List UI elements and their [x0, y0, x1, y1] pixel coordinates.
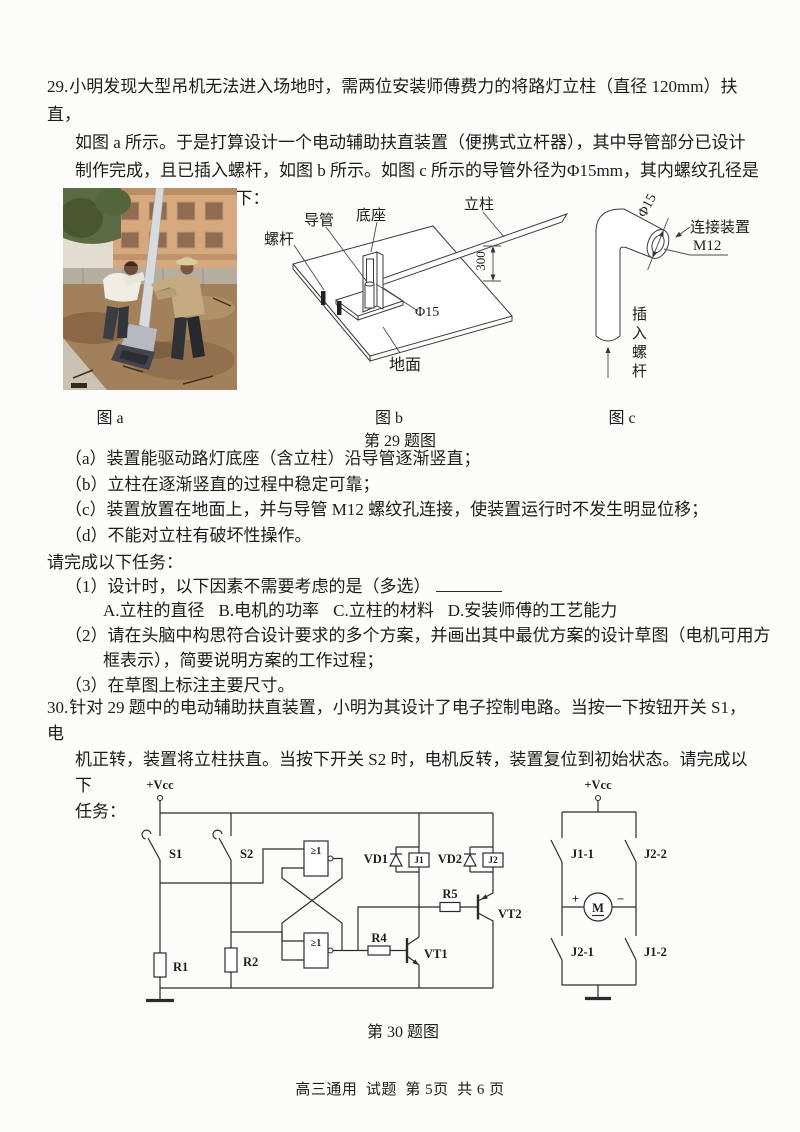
vd1-label: VD1 — [364, 852, 388, 866]
r5-label: R5 — [442, 887, 457, 901]
figure-b-drawing: 螺杆 导管 底座 立柱 Φ15 地面 300 — [250, 188, 570, 400]
resistor-r2: R2 — [225, 948, 258, 972]
contact-j2-1: J2-1 — [551, 938, 594, 960]
q30-text: 针对 29 题中的电动辅助扶直装置，小明为其设计了电子控制电路。当按一下按钮开关… — [47, 698, 746, 743]
s2-label: S2 — [240, 847, 253, 861]
contact-j2-2: J2-2 — [625, 840, 667, 862]
j1-2-label: J1-2 — [644, 945, 667, 959]
nor-gate-1: ≥1 — [304, 841, 333, 876]
resistor-r4: R4 — [368, 931, 390, 955]
page-footer: 高三通用 试题 第 5页 共 6 页 — [0, 1078, 800, 1099]
requirement-b: （b）立柱在逐渐竖直的过程中稳定可靠； — [65, 472, 708, 498]
circuit-diagram: +Vcc S1 R1 S2 — [85, 778, 745, 1018]
task-3: （3）在草图上标注主要尺寸。 — [65, 671, 295, 696]
r2-label: R2 — [243, 955, 258, 969]
resistor-r1: R1 — [154, 953, 188, 977]
r4-label: R4 — [371, 931, 387, 945]
vcc-label: +Vcc — [584, 778, 612, 792]
q29-line: 29.小明发现大型吊机无法进入场地时，需两位安装师傅费力的将路灯立柱（直径 12… — [47, 73, 762, 129]
s1-label: S1 — [169, 847, 182, 861]
requirement-a: （a）装置能驱动路灯底座（含立柱）沿导管逐渐竖直； — [65, 446, 708, 472]
contact-j1-2: J1-2 — [625, 938, 667, 960]
photo-illustration — [63, 188, 237, 390]
requirement-c: （c）装置放置在地面上，并与导管 M12 螺纹孔连接，使装置运行时不发生明显位移… — [65, 497, 708, 523]
nor-gate-2: ≥1 — [304, 933, 333, 968]
caption-question-30-figure: 第 30 题图 — [333, 1018, 473, 1042]
vcc-label: +Vcc — [146, 778, 174, 792]
task-2-line-2: 框表示），简要说明方案的工作过程； — [103, 646, 384, 671]
resistor-r5: R5 — [440, 887, 460, 912]
task-1: （1）设计时，以下因素不需要考虑的是（多选） — [65, 572, 502, 597]
label-dimension-300: 300 — [473, 251, 489, 271]
pushbutton-s2: S2 — [213, 830, 253, 861]
motor-plus: + — [572, 892, 579, 906]
label-pole: 立柱 — [464, 193, 494, 214]
option-d: D.安装师傅的工艺能力 — [448, 596, 618, 621]
figure-30-circuit: +Vcc S1 R1 S2 — [85, 778, 745, 1018]
motor-minus: − — [617, 892, 624, 906]
label-insert-screw: 插入螺杆 — [628, 306, 649, 382]
control-circuit: +Vcc S1 R1 S2 — [142, 778, 522, 1001]
vcc-terminal — [158, 796, 163, 801]
task-1-options: A.立柱的直径 B.电机的功率 C.立柱的材料 D.安装师傅的工艺能力 — [103, 596, 617, 621]
q29-text: 小明发现大型吊机无法进入场地时，需两位安装师傅费力的将路灯立柱（直径 120mm… — [47, 77, 737, 124]
task-2-line-1: （2）请在头脑中构思符合设计要求的多个方案，并画出其中最优方案的设计草图（电机可… — [65, 621, 771, 646]
vcc-terminal — [596, 796, 601, 801]
q30-line: 30.针对 29 题中的电动辅助扶直装置，小明为其设计了电子控制电路。当按一下按… — [47, 695, 762, 747]
label-ground: 地面 — [389, 351, 421, 375]
q29-number: 29. — [47, 77, 68, 96]
q29-line: 如图 a 所示。于是打算设计一个电动辅助扶直装置（便携式立杆器），其中导管部分已… — [47, 129, 762, 157]
relay-j2-diode-vd2: J2 VD2 — [438, 813, 503, 893]
relay-j1-diode-vd1: J1 VD1 — [364, 813, 429, 937]
vd2-label: VD2 — [438, 852, 462, 866]
label-diameter-15: Φ15 — [415, 305, 439, 321]
option-b: B.电机的功率 — [219, 596, 320, 621]
option-c: C.立柱的材料 — [333, 596, 434, 621]
j1-label: J1 — [414, 856, 424, 866]
q30-number: 30. — [47, 698, 68, 717]
gate1-symbol: ≥1 — [311, 846, 322, 857]
tasks-intro: 请完成以下任务： — [47, 548, 183, 573]
figure-29-row: 螺杆 导管 底座 立柱 Φ15 地面 300 — [0, 188, 800, 438]
motor-circuit: +Vcc J1-1 J2-2 M + − — [551, 778, 667, 999]
design-requirements: （a）装置能驱动路灯底座（含立柱）沿导管逐渐竖直； （b）立柱在逐渐竖直的过程中… — [65, 446, 708, 548]
label-screw-rod: 螺杆 — [264, 228, 294, 249]
motor-label: M — [592, 901, 604, 915]
j2-2-label: J2-2 — [644, 847, 667, 861]
caption-fig-a: 图 a — [80, 404, 140, 428]
exam-page: 29.小明发现大型吊机无法进入场地时，需两位安装师傅费力的将路灯立柱（直径 12… — [0, 0, 800, 1132]
answer-blank — [436, 577, 502, 592]
figure-a-photo — [63, 188, 237, 390]
transistor-vt2: VT2 — [478, 893, 522, 988]
label-thread-m12: M12 — [693, 238, 721, 255]
j2-label: J2 — [488, 856, 498, 866]
caption-fig-c: 图 c — [592, 404, 652, 428]
vt1-label: VT1 — [424, 947, 448, 961]
pushbutton-s1: S1 — [142, 830, 182, 861]
task-1-text: （1）设计时，以下因素不需要考虑的是（多选） — [65, 577, 431, 596]
gate2-symbol: ≥1 — [311, 938, 322, 949]
contact-j1-1: J1-1 — [551, 840, 594, 862]
label-connector: 连接装置 — [690, 216, 750, 237]
caption-fig-b: 图 b — [359, 404, 419, 428]
j1-1-label: J1-1 — [571, 847, 594, 861]
option-a: A.立柱的直径 — [103, 596, 205, 621]
q29-line: 制作完成，且已插入螺杆，如图 b 所示。如图 c 所示的导管外径为Φ15mm，其… — [47, 157, 762, 185]
figure-c-drawing: Φ15 连接装置 M12 插入螺杆 — [580, 188, 760, 400]
transistor-vt1: VT1 — [407, 937, 448, 988]
label-guide-tube: 导管 — [304, 209, 334, 230]
r1-label: R1 — [173, 960, 188, 974]
label-base: 底座 — [356, 204, 386, 225]
vt2-label: VT2 — [498, 907, 522, 921]
requirement-d: （d）不能对立柱有破坏性操作。 — [65, 523, 708, 549]
j2-1-label: J2-1 — [571, 945, 594, 959]
